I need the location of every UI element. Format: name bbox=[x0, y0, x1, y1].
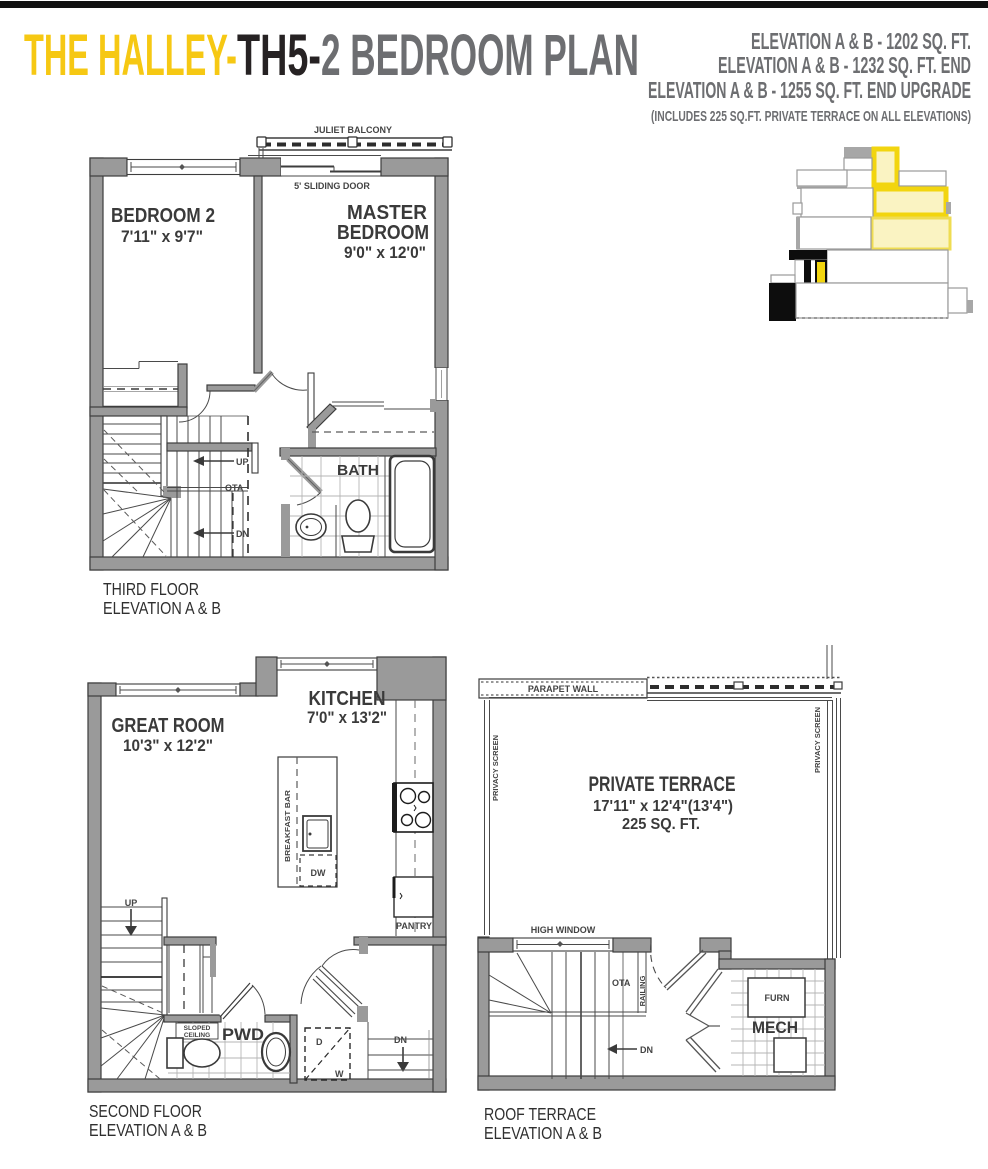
svg-text:MECH: MECH bbox=[752, 1018, 798, 1037]
svg-text:UP: UP bbox=[236, 457, 249, 467]
svg-text:THE HALLEY-: THE HALLEY- bbox=[24, 23, 237, 88]
svg-text:D: D bbox=[316, 1037, 323, 1047]
svg-text:DW: DW bbox=[311, 868, 326, 878]
svg-text:OTA: OTA bbox=[225, 483, 244, 493]
svg-text:FURN: FURN bbox=[765, 993, 790, 1003]
svg-text:7'0" x 13'2": 7'0" x 13'2" bbox=[307, 708, 387, 727]
svg-text:BEDROOM: BEDROOM bbox=[337, 222, 429, 244]
svg-text:ELEVATION A & B: ELEVATION A & B bbox=[103, 598, 221, 618]
svg-text:KITCHEN: KITCHEN bbox=[309, 688, 386, 710]
svg-text:BREAKFAST BAR: BREAKFAST BAR bbox=[283, 789, 292, 862]
svg-text:9'0" x 12'0": 9'0" x 12'0" bbox=[344, 243, 426, 262]
svg-text:BATH: BATH bbox=[337, 463, 379, 479]
svg-text:TH5-: TH5- bbox=[237, 23, 321, 88]
svg-text:7'11" x 9'7": 7'11" x 9'7" bbox=[121, 227, 203, 246]
svg-text:JULIET BALCONY: JULIET BALCONY bbox=[314, 125, 392, 135]
svg-text:PWD: PWD bbox=[222, 1025, 264, 1044]
svg-text:ELEVATION A & B - 1255 SQ. FT.: ELEVATION A & B - 1255 SQ. FT. END UPGRA… bbox=[648, 77, 971, 103]
svg-text:CEILING: CEILING bbox=[184, 1032, 210, 1039]
svg-text:DN: DN bbox=[394, 1035, 407, 1045]
svg-text:10'3" x 12'2": 10'3" x 12'2" bbox=[123, 736, 213, 755]
svg-text:MASTER: MASTER bbox=[347, 202, 428, 224]
svg-text:THIRD FLOOR: THIRD FLOOR bbox=[103, 579, 199, 599]
svg-text:ELEVATION A & B: ELEVATION A & B bbox=[89, 1120, 207, 1140]
svg-text:PRIVACY SCREEN: PRIVACY SCREEN bbox=[813, 707, 822, 773]
svg-text:PARAPET WALL: PARAPET WALL bbox=[528, 684, 599, 694]
svg-text:ROOF TERRACE: ROOF TERRACE bbox=[484, 1104, 596, 1124]
svg-text:SLOPED: SLOPED bbox=[184, 1025, 211, 1032]
svg-text:PANTRY: PANTRY bbox=[396, 921, 432, 931]
svg-text:RAILING: RAILING bbox=[638, 975, 647, 1006]
svg-text:5' SLIDING DOOR: 5' SLIDING DOOR bbox=[294, 181, 370, 191]
svg-text:PRIVACY SCREEN: PRIVACY SCREEN bbox=[491, 735, 500, 801]
svg-text:DN: DN bbox=[640, 1045, 653, 1055]
svg-text:2 BEDROOM PLAN: 2 BEDROOM PLAN bbox=[321, 23, 639, 88]
svg-text:ELEVATION A & B: ELEVATION A & B bbox=[484, 1123, 602, 1143]
svg-text:PRIVATE TERRACE: PRIVATE TERRACE bbox=[589, 773, 736, 796]
svg-text:SECOND FLOOR: SECOND FLOOR bbox=[89, 1101, 202, 1121]
svg-text:ELEVATION A & B - 1202 SQ. FT.: ELEVATION A & B - 1202 SQ. FT. bbox=[751, 28, 971, 54]
svg-text:ELEVATION A & B - 1232 SQ. FT.: ELEVATION A & B - 1232 SQ. FT. END bbox=[718, 52, 971, 78]
svg-text:DN: DN bbox=[236, 529, 249, 539]
svg-text:HIGH WINDOW: HIGH WINDOW bbox=[531, 925, 596, 935]
svg-text:225 SQ. FT.: 225 SQ. FT. bbox=[622, 816, 700, 833]
svg-text:GREAT ROOM: GREAT ROOM bbox=[112, 715, 225, 737]
svg-text:BEDROOM 2: BEDROOM 2 bbox=[111, 205, 215, 227]
svg-text:17'11" x 12'4"(13'4"): 17'11" x 12'4"(13'4") bbox=[593, 798, 733, 815]
svg-text:W: W bbox=[335, 1069, 344, 1079]
svg-text:OTA: OTA bbox=[612, 978, 631, 988]
svg-text:(INCLUDES 225 SQ.FT. PRIVATE T: (INCLUDES 225 SQ.FT. PRIVATE TERRACE ON … bbox=[651, 108, 971, 125]
